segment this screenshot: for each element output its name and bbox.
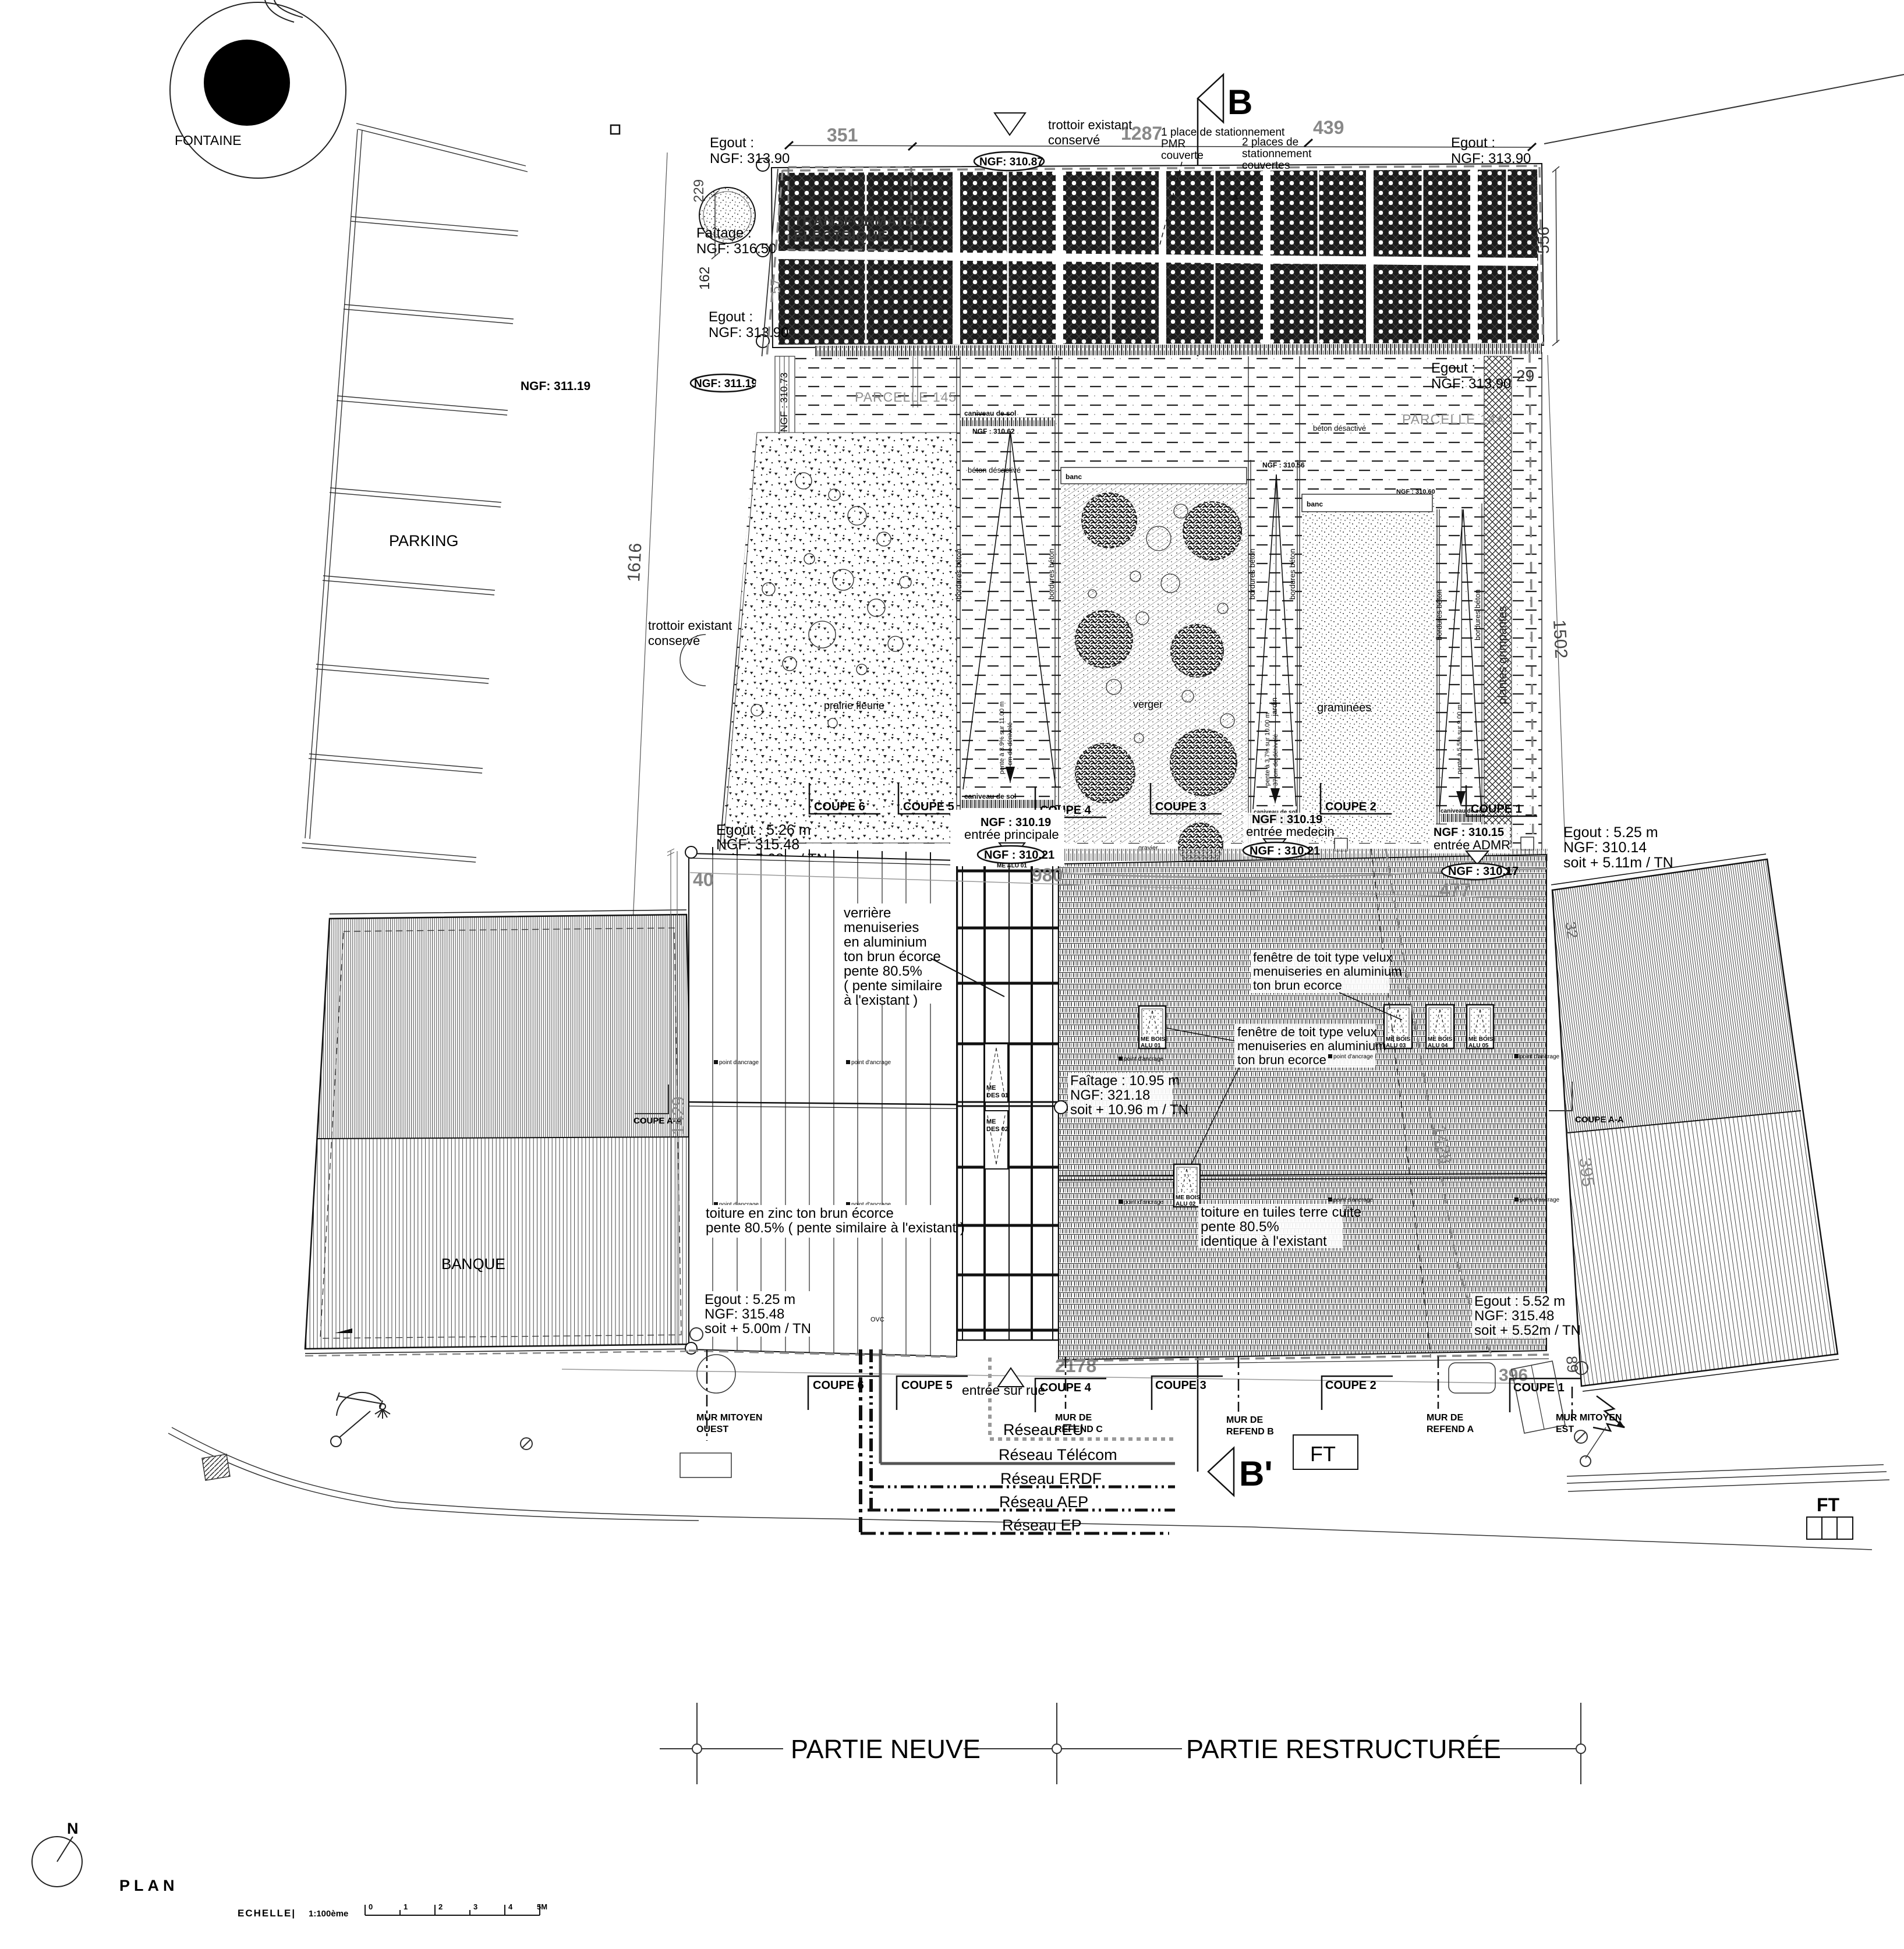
- svg-text:MUR DE: MUR DE: [1226, 1415, 1263, 1425]
- svg-text:NGF: 311.19: NGF: 311.19: [694, 378, 758, 390]
- svg-text:NGF : 310.73: NGF : 310.73: [778, 373, 790, 432]
- svg-text:trottoir existant: trottoir existant: [648, 618, 732, 633]
- svg-text:COUPE 1: COUPE 1: [1471, 803, 1522, 816]
- svg-text:REFEND A: REFEND A: [1427, 1424, 1474, 1434]
- svg-text:MUR DE: MUR DE: [1427, 1413, 1463, 1423]
- svg-text:ELECTRIQUE: ELECTRIQUE: [794, 229, 887, 245]
- svg-text:bordures béton: bordures béton: [1288, 549, 1297, 600]
- svg-text:FT: FT: [1310, 1442, 1336, 1466]
- svg-text:COUPE 5: COUPE 5: [903, 800, 954, 813]
- svg-text:Réseau ERDF: Réseau ERDF: [1000, 1470, 1102, 1487]
- svg-text:COUPE 6: COUPE 6: [813, 1379, 864, 1392]
- svg-text:bordures béton: bordures béton: [1248, 549, 1257, 600]
- svg-text:Egout :: Egout :: [1431, 360, 1475, 376]
- svg-text:1: 1: [404, 1902, 408, 1911]
- svg-text:B': B': [1239, 1454, 1273, 1493]
- svg-text:NGF: 315.48: NGF: 315.48: [705, 1306, 784, 1322]
- svg-text:menuiseries: menuiseries: [844, 920, 919, 935]
- svg-text:4: 4: [508, 1902, 513, 1911]
- svg-text:couverte: couverte: [1161, 150, 1204, 162]
- svg-text:soit + 5.11m / TN: soit + 5.11m / TN: [1563, 855, 1673, 871]
- svg-text:OUEST: OUEST: [696, 1424, 728, 1434]
- svg-text:29: 29: [1516, 367, 1534, 385]
- svg-text:Faîtage :: Faîtage :: [696, 225, 752, 241]
- svg-text:graminées: graminées: [1317, 701, 1371, 714]
- svg-text:Egout :: Egout :: [710, 135, 754, 151]
- svg-text:FT: FT: [1817, 1494, 1840, 1515]
- svg-text:jardin: jardin: [1270, 697, 1279, 717]
- svg-text:NGF: 311.19: NGF: 311.19: [521, 380, 590, 393]
- svg-text:Egout :: Egout :: [1451, 135, 1495, 151]
- svg-text:NGF : 310.21: NGF : 310.21: [1250, 845, 1320, 857]
- svg-text:trottoir existant: trottoir existant: [1048, 118, 1132, 132]
- svg-text:NGF: 315.48: NGF: 315.48: [1474, 1308, 1554, 1324]
- svg-text:1502: 1502: [1549, 619, 1570, 659]
- svg-text:entrée sur rue: entrée sur rue: [962, 1383, 1045, 1398]
- svg-text:3: 3: [473, 1902, 477, 1911]
- svg-text:NGF : 310.62: NGF : 310.62: [972, 427, 1015, 435]
- svg-text:ME BOIS: ME BOIS: [1386, 1036, 1411, 1043]
- svg-text:menuiseries en aluminium: menuiseries en aluminium: [1237, 1039, 1386, 1053]
- svg-text:caniveau de sol: caniveau de sol: [964, 409, 1016, 417]
- svg-text:pente 80.5%: pente 80.5%: [1201, 1219, 1279, 1235]
- svg-text:point d'ancrage: point d'ancrage: [851, 1059, 891, 1066]
- svg-text:Faîtage : 10.95 m: Faîtage : 10.95 m: [1070, 1073, 1180, 1089]
- svg-text:ALU 02: ALU 02: [1176, 1201, 1196, 1207]
- svg-text:BANQUE: BANQUE: [441, 1255, 505, 1273]
- svg-text:entrée ADMR: entrée ADMR: [1434, 838, 1510, 852]
- svg-text:fenêtre de toit type velux: fenêtre de toit type velux: [1253, 950, 1393, 965]
- svg-text:Egout :: Egout :: [709, 309, 753, 325]
- svg-text:soit + 10.96 m / TN: soit + 10.96 m / TN: [1070, 1102, 1188, 1118]
- svg-text:( pente similaire: ( pente similaire: [844, 978, 942, 994]
- svg-text:entrée medecin: entrée medecin: [1246, 824, 1335, 839]
- svg-text:stationnement: stationnement: [1242, 148, 1312, 160]
- svg-text:89: 89: [1563, 1355, 1581, 1373]
- svg-text:ALU 01: ALU 01: [1141, 1043, 1161, 1049]
- svg-text:ME: ME: [986, 1085, 996, 1092]
- svg-text:Réseau Télécom: Réseau Télécom: [999, 1446, 1117, 1463]
- svg-text:162: 162: [697, 267, 713, 290]
- svg-text:40: 40: [693, 869, 714, 890]
- svg-text:NGF: 313.90: NGF: 313.90: [1431, 376, 1511, 392]
- svg-text:1616: 1616: [624, 543, 645, 582]
- svg-text:1:100ème: 1:100ème: [309, 1909, 348, 1919]
- svg-text:NGF: 315.48: NGF: 315.48: [716, 837, 799, 853]
- svg-text:point d'ancrage: point d'ancrage: [719, 1059, 759, 1066]
- svg-text:fenêtre de toit type velux: fenêtre de toit type velux: [1237, 1025, 1377, 1039]
- svg-text:banc: banc: [1066, 473, 1082, 481]
- svg-text:REFEND B: REFEND B: [1226, 1427, 1274, 1437]
- svg-text:0: 0: [369, 1902, 373, 1911]
- svg-text:PMR: PMR: [1161, 138, 1185, 150]
- svg-text:NGF: 316.50: NGF: 316.50: [696, 241, 776, 257]
- svg-text:conservé: conservé: [1048, 133, 1100, 147]
- svg-text:Egout : 5.25 m: Egout : 5.25 m: [705, 1292, 795, 1307]
- svg-text:caniveau de sol: caniveau de sol: [964, 792, 1016, 800]
- svg-text:NGF : 310.15: NGF : 310.15: [1434, 826, 1504, 839]
- svg-text:COUPE 3: COUPE 3: [1155, 800, 1206, 813]
- svg-text:ALU 03: ALU 03: [1386, 1043, 1406, 1049]
- svg-text:conservé: conservé: [648, 633, 700, 648]
- svg-text:COUPE 2: COUPE 2: [1325, 800, 1376, 813]
- svg-text:ton brun écorce: ton brun écorce: [844, 949, 941, 965]
- svg-text:NGF: 310.14: NGF: 310.14: [1563, 839, 1647, 856]
- svg-text:PARTIE NEUVE: PARTIE NEUVE: [791, 1734, 981, 1764]
- svg-text:DES 02: DES 02: [986, 1126, 1008, 1133]
- svg-text:ALU 05: ALU 05: [1468, 1043, 1489, 1049]
- svg-text:439: 439: [1313, 117, 1344, 138]
- svg-text:Egout : 5.25 m: Egout : 5.25 m: [1563, 824, 1658, 841]
- svg-text:REFEND C: REFEND C: [1055, 1424, 1103, 1434]
- svg-text:bordures béton: bordures béton: [1473, 590, 1482, 640]
- svg-text:980: 980: [1032, 864, 1063, 885]
- svg-text:NGF: 313.90: NGF: 313.90: [710, 151, 790, 166]
- svg-text:PARKING: PARKING: [389, 532, 459, 550]
- svg-text:ME BOIS: ME BOIS: [1428, 1036, 1453, 1043]
- svg-text:bordures béton: bordures béton: [1047, 549, 1056, 600]
- svg-text:couvertes: couvertes: [1242, 160, 1290, 172]
- svg-text:57: 57: [768, 278, 784, 294]
- svg-text:pente à 5.5% sur 9.00 m: pente à 5.5% sur 9.00 m: [1456, 704, 1463, 774]
- svg-text:5M: 5M: [537, 1902, 547, 1911]
- svg-text:NGF: 313.90: NGF: 313.90: [709, 325, 788, 341]
- svg-text:ME ALU 01: ME ALU 01: [997, 863, 1027, 869]
- svg-text:ECHELLE|: ECHELLE|: [238, 1908, 296, 1919]
- svg-text:pente à 3.7% sur 10.00 m: pente à 3.7% sur 10.00 m: [1264, 713, 1271, 786]
- svg-text:ton brun ecorce: ton brun ecorce: [1237, 1053, 1326, 1067]
- svg-text:NGF : 310.60: NGF : 310.60: [1396, 488, 1435, 495]
- svg-text:45 cm de dénivelé: 45 cm de dénivelé: [1007, 722, 1014, 774]
- svg-text:banc: banc: [1307, 500, 1323, 508]
- svg-text:COUPE 3: COUPE 3: [1155, 1379, 1206, 1392]
- svg-text:1429: 1429: [669, 1096, 688, 1135]
- svg-text:ME BOIS: ME BOIS: [1468, 1036, 1494, 1043]
- svg-text:pente 80.5% ( pente similaire: pente 80.5% ( pente similaire à l'exista…: [706, 1220, 965, 1236]
- svg-text:ME: ME: [986, 1118, 996, 1125]
- svg-text:toiture en zinc ton brun écorc: toiture en zinc ton brun écorce: [706, 1206, 894, 1221]
- svg-text:DES 01: DES 01: [986, 1092, 1008, 1099]
- svg-text:B: B: [1227, 83, 1252, 122]
- svg-text:N: N: [67, 1820, 79, 1837]
- svg-text:COUPE 6: COUPE 6: [814, 800, 865, 813]
- svg-text:verger: verger: [1133, 699, 1163, 710]
- svg-text:PLAN: PLAN: [119, 1877, 179, 1894]
- svg-text:pente à 3.9% sur 11.00 m: pente à 3.9% sur 11.00 m: [999, 701, 1006, 774]
- svg-text:556: 556: [1534, 226, 1552, 254]
- svg-text:béton désactivé: béton désactivé: [968, 466, 1021, 474]
- svg-text:37 cm de dénivelé: 37 cm de dénivelé: [1272, 734, 1279, 786]
- svg-text:2 places de: 2 places de: [1242, 136, 1298, 148]
- svg-text:FONTAINE: FONTAINE: [175, 133, 242, 148]
- svg-text:PARCELLE 145: PARCELLE 145: [855, 389, 957, 405]
- svg-text:PARCELLE 144: PARCELLE 144: [1402, 412, 1504, 427]
- svg-text:identique à l'existant: identique à l'existant: [1201, 1234, 1327, 1249]
- svg-text:PARTIE RESTRUCTURÉE: PARTIE RESTRUCTURÉE: [1186, 1734, 1501, 1764]
- svg-text:verrière: verrière: [844, 905, 891, 921]
- svg-text:prairie fleurie: prairie fleurie: [824, 700, 884, 711]
- svg-text:229: 229: [691, 179, 707, 203]
- svg-text:toiture en tuiles terre cuite: toiture en tuiles terre cuite: [1201, 1204, 1361, 1220]
- svg-text:NGF : 310.17: NGF : 310.17: [1448, 865, 1519, 878]
- svg-text:Réseau AEP: Réseau AEP: [999, 1493, 1088, 1511]
- svg-text:NGF: 321.18: NGF: 321.18: [1070, 1087, 1150, 1103]
- svg-text:en aluminium: en aluminium: [844, 934, 927, 950]
- svg-text:bordures béton: bordures béton: [954, 549, 963, 600]
- svg-text:point d'ancrage: point d'ancrage: [1124, 1056, 1164, 1062]
- svg-text:NGF: 310.87: NGF: 310.87: [979, 156, 1043, 168]
- svg-text:Egout : 5.26 m: Egout : 5.26 m: [716, 822, 811, 838]
- svg-text:ALU 04: ALU 04: [1428, 1043, 1448, 1049]
- svg-text:COUPE 5: COUPE 5: [901, 1379, 953, 1392]
- svg-text:soit + 5.52m / TN: soit + 5.52m / TN: [1474, 1323, 1581, 1338]
- svg-text:ME BOIS: ME BOIS: [1141, 1036, 1166, 1043]
- svg-text:2178: 2178: [1055, 1355, 1096, 1376]
- svg-text:béton désactivé: béton désactivé: [1313, 424, 1366, 433]
- svg-text:entrée principale: entrée principale: [964, 827, 1059, 842]
- svg-text:Réseau EP: Réseau EP: [1002, 1516, 1082, 1534]
- svg-text:ME BOIS: ME BOIS: [1176, 1195, 1201, 1201]
- svg-text:NGF: 313.90: NGF: 313.90: [1451, 151, 1531, 166]
- svg-text:menuiseries en aluminium: menuiseries en aluminium: [1253, 964, 1402, 979]
- svg-text:COUPE 2: COUPE 2: [1325, 1379, 1376, 1392]
- svg-text:COUPE A-A: COUPE A-A: [1575, 1115, 1624, 1125]
- svg-text:2: 2: [438, 1902, 443, 1911]
- svg-text:NGF : 310.56: NGF : 310.56: [1262, 461, 1305, 469]
- svg-text:MUR DE: MUR DE: [1055, 1413, 1092, 1423]
- svg-text:TRANSFORMATEUR: TRANSFORMATEUR: [794, 213, 936, 229]
- svg-text:soit + 5.00m / TN: soit + 5.00m / TN: [705, 1321, 811, 1337]
- svg-text:395: 395: [1575, 1157, 1598, 1188]
- svg-text:32: 32: [1562, 920, 1582, 940]
- svg-text:477: 477: [1439, 880, 1470, 901]
- svg-text:ton brun ecorce: ton brun ecorce: [1253, 978, 1342, 993]
- svg-text:pente 80.5%: pente 80.5%: [844, 963, 922, 979]
- svg-text:plantes grimpantes: plantes grimpantes: [1496, 606, 1509, 704]
- svg-text:Egout : 5.52 m: Egout : 5.52 m: [1474, 1294, 1565, 1309]
- svg-text:OVC: OVC: [870, 1316, 884, 1323]
- svg-text:NGF : 310.21: NGF : 310.21: [984, 849, 1054, 862]
- svg-text:bordures béton: bordures béton: [1435, 590, 1443, 640]
- svg-text:à l'existant ): à l'existant ): [844, 993, 918, 1008]
- svg-text:351: 351: [827, 125, 858, 146]
